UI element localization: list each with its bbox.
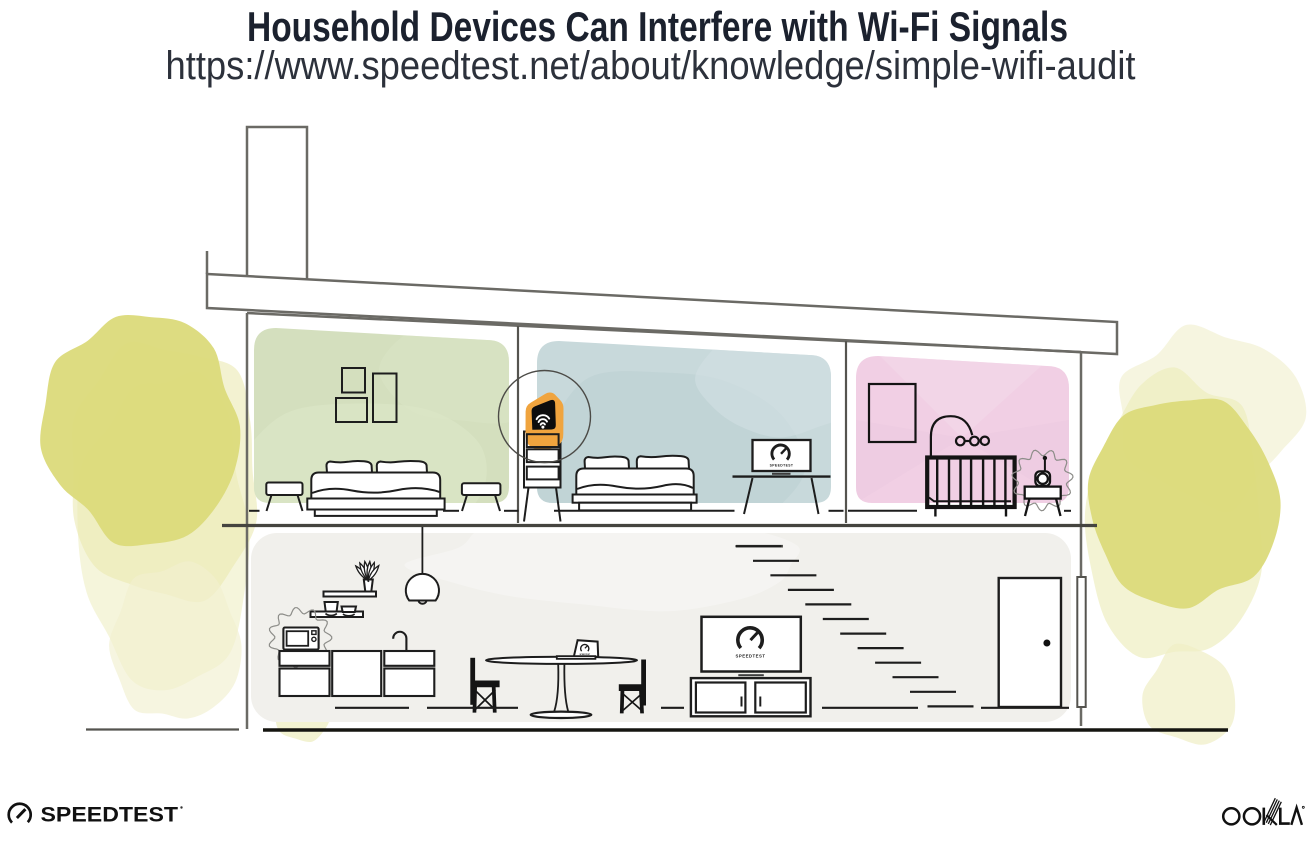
svg-text:SPEEDTEST: SPEEDTEST (770, 463, 794, 467)
svg-text:SPEEDTEST: SPEEDTEST (735, 654, 765, 659)
svg-text:SPEEDTEST: SPEEDTEST (41, 803, 179, 827)
svg-text:SPEEDTEST: SPEEDTEST (579, 654, 591, 656)
svg-text:https://www.speedtest.net/abou: https://www.speedtest.net/about/knowledg… (166, 44, 1136, 88)
svg-text:Household Devices Can Interfer: Household Devices Can Interfere with Wi-… (247, 3, 1068, 50)
